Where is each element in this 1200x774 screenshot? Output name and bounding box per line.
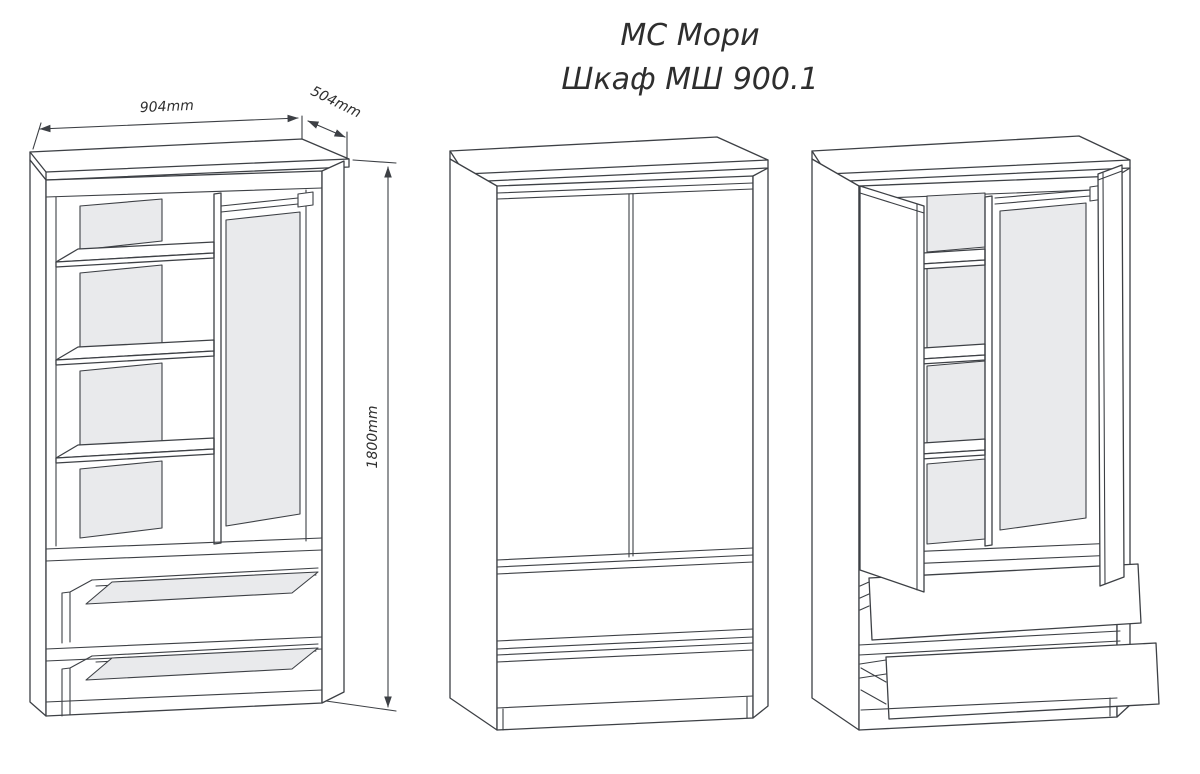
back-panel-hanging-section	[1000, 203, 1086, 530]
left-side-panel	[30, 160, 46, 716]
wardrobe-technical-drawing: 904mm 504mm 1800mm	[0, 0, 1200, 774]
left-side-panel	[450, 159, 497, 730]
right-side-panel	[322, 161, 344, 703]
door-left-open	[860, 186, 924, 592]
height-dimension-label: 1800mm	[365, 406, 381, 469]
rod-bracket	[298, 192, 313, 207]
view-open-carcass	[30, 139, 349, 716]
door-right-open	[1098, 165, 1124, 586]
width-dimension-label: 904mm	[140, 98, 195, 116]
top-panel	[30, 139, 349, 172]
view-closed	[450, 137, 768, 730]
left-side-panel	[812, 159, 859, 730]
right-side-panel	[753, 168, 768, 718]
back-panel-left-column	[927, 193, 985, 544]
back-panel-hanging-section	[226, 212, 300, 526]
top-panel	[450, 137, 768, 174]
view-open-doors	[812, 136, 1159, 730]
depth-dimension-label: 504mm	[308, 83, 364, 121]
technical-drawing-sheet: МС Мори Шкаф МШ 900.1	[0, 0, 1200, 774]
top-panel	[812, 136, 1130, 174]
